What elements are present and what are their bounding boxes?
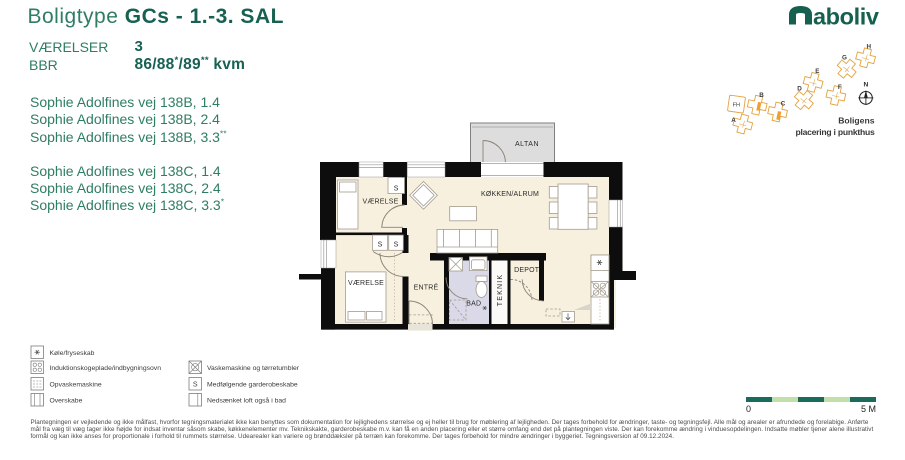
svg-text:placering i punkthus: placering i punkthus (795, 127, 875, 137)
svg-text:F: F (838, 84, 842, 91)
svg-text:D: D (797, 86, 802, 93)
svg-text:Opvaskemaskine: Opvaskemaskine (50, 382, 102, 389)
svg-text:BAD: BAD (466, 301, 481, 308)
svg-text:S: S (193, 381, 198, 388)
svg-text:ALTAN: ALTAN (515, 141, 539, 148)
svg-text:N: N (864, 82, 869, 89)
svg-text:E: E (815, 68, 819, 75)
svg-text:Overskabe: Overskabe (50, 398, 83, 405)
svg-text:Induktionskogeplade/indbygning: Induktionskogeplade/indbygningsovn (50, 365, 162, 372)
svg-text:B: B (759, 92, 764, 99)
svg-text:VÆRELSE: VÆRELSE (348, 280, 384, 287)
svg-text:FH: FH (733, 102, 740, 108)
svg-text:5 M: 5 M (861, 404, 876, 414)
svg-text:ENTRÉ: ENTRÉ (414, 283, 439, 292)
svg-text:aboliv: aboliv (813, 4, 879, 30)
svg-text:0: 0 (746, 404, 751, 414)
svg-text:KØKKEN/ALRUM: KØKKEN/ALRUM (481, 191, 539, 198)
svg-text:S: S (394, 186, 399, 193)
svg-text:Vaskemaskine og tørretumbler: Vaskemaskine og tørretumbler (207, 365, 300, 372)
svg-text:S: S (378, 242, 383, 249)
svg-text:Medfølgende garderobeskabe: Medfølgende garderobeskabe (207, 382, 298, 389)
svg-text:C: C (781, 101, 786, 108)
svg-text:A: A (731, 117, 736, 124)
svg-text:G: G (842, 55, 847, 62)
svg-text:TEKNIK: TEKNIK (497, 274, 504, 306)
svg-text:H: H (867, 44, 872, 51)
svg-text:DEPOT: DEPOT (514, 267, 540, 274)
svg-text:Boligens: Boligens (838, 116, 875, 126)
svg-text:Nedsænket loft også i bad: Nedsænket loft også i bad (207, 397, 286, 405)
svg-text:Køle/fryseskab: Køle/fryseskab (50, 350, 95, 357)
svg-text:S: S (394, 242, 399, 249)
svg-text:VÆRELSE: VÆRELSE (362, 199, 398, 206)
